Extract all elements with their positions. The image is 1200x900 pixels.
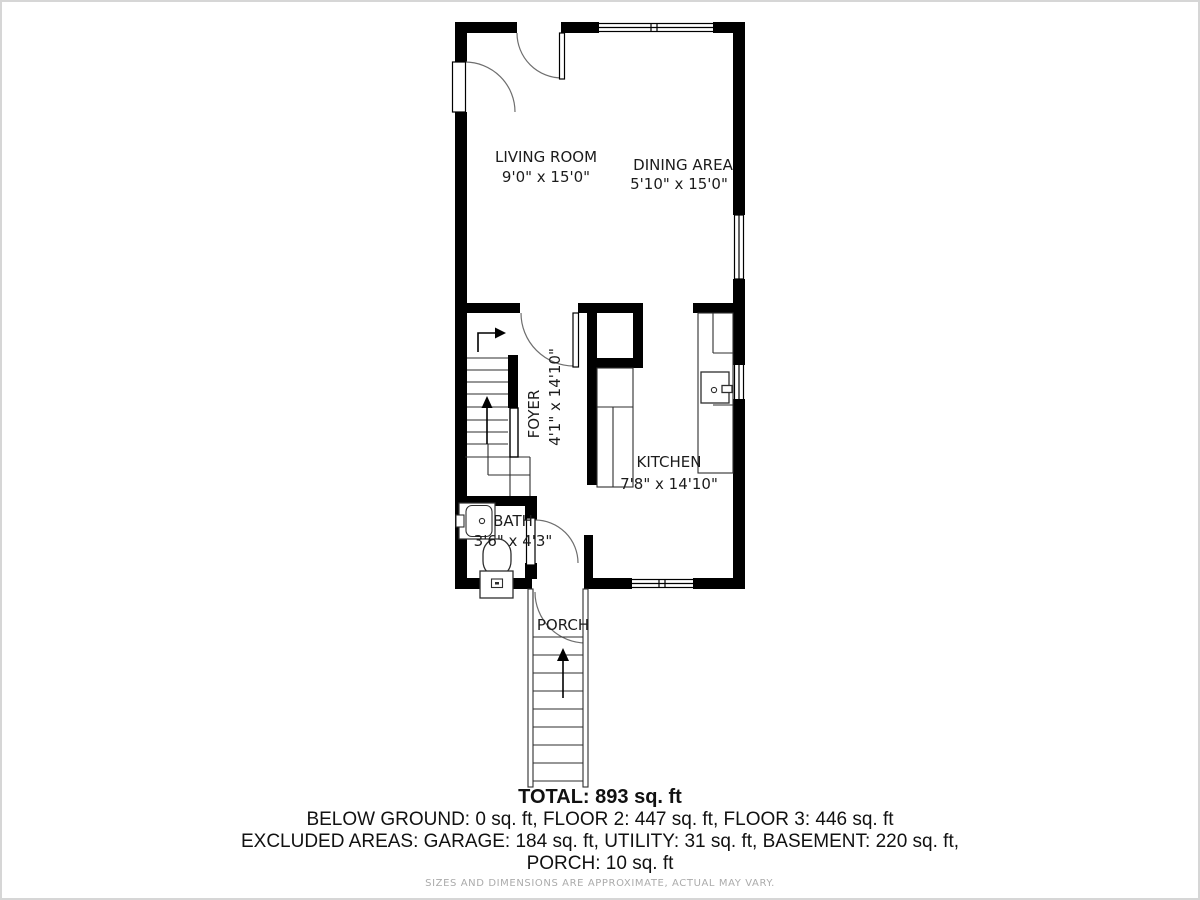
room-dim-dining-area: 5'10" x 15'0" [630, 175, 728, 193]
stair-wall-stub [508, 355, 518, 408]
floor-plan-drawing: LIVING ROOM 9'0" x 15'0" DINING AREA 5'1… [0, 0, 1200, 900]
disclaimer-text: SIZES AND DIMENSIONS ARE APPROXIMATE, AC… [0, 878, 1200, 889]
interior-stairs [465, 358, 530, 496]
room-dim-kitchen: 7'8" x 14'10" [620, 475, 718, 493]
floors-area-text: BELOW GROUND: 0 sq. ft, FLOOR 2: 447 sq.… [0, 809, 1200, 831]
room-dim-living-room: 9'0" x 15'0" [502, 168, 590, 186]
excluded-area-text-2: PORCH: 10 sq. ft [0, 853, 1200, 875]
area-summary: TOTAL: 893 sq. ft BELOW GROUND: 0 sq. ft… [0, 786, 1200, 889]
bath-soap-dish [456, 515, 464, 527]
room-label-foyer: FOYER [525, 390, 543, 439]
sink-handle [722, 386, 732, 393]
excluded-area-text: EXCLUDED AREAS: GARAGE: 184 sq. ft, UTIL… [0, 831, 1200, 853]
entry-wall-stub [584, 535, 593, 578]
room-label-kitchen: KITCHEN [637, 453, 702, 471]
total-area-text: TOTAL: 893 sq. ft [0, 786, 1200, 809]
room-dim-bath: 3'6" x 4'3" [474, 532, 553, 550]
room-label-bath: BATH [493, 512, 533, 530]
opening-porch-entry [532, 577, 584, 590]
door-leaf-foyer [573, 313, 579, 367]
room-label-dining-area: DINING AREA [633, 156, 733, 174]
floor-plan-page: LIVING ROOM 9'0" x 15'0" DINING AREA 5'1… [0, 0, 1200, 900]
toilet-flush-dot [495, 582, 499, 585]
window-bottom [628, 578, 697, 589]
door-leaf-left-balcony [453, 62, 466, 112]
window-right-dining [733, 211, 745, 283]
stair-up-arrow-top [478, 328, 506, 353]
faucet-icon [711, 387, 716, 392]
divider-wall-right [693, 303, 745, 313]
stair-railing [510, 408, 518, 457]
door-leaf-top-balcony [560, 33, 565, 79]
door-arc-top-balcony [517, 33, 562, 78]
room-label-porch: PORCH [537, 616, 589, 634]
door-arc-left-balcony [465, 62, 515, 112]
window-right-kitchen [733, 361, 745, 403]
porch-rail-left [528, 589, 533, 787]
room-label-living-room: LIVING ROOM [495, 148, 597, 166]
divider-wall-left [455, 303, 520, 313]
opening-top-balcony-door [517, 21, 561, 34]
kitchen-fixtures [698, 313, 733, 473]
window-top [595, 22, 717, 33]
foyer-kitchen-wall [587, 303, 597, 485]
room-dim-foyer: 4'1" x 14'10" [546, 348, 564, 446]
closet-cabinets [597, 368, 633, 487]
doors [453, 33, 587, 643]
kitchen-sink [701, 372, 732, 403]
